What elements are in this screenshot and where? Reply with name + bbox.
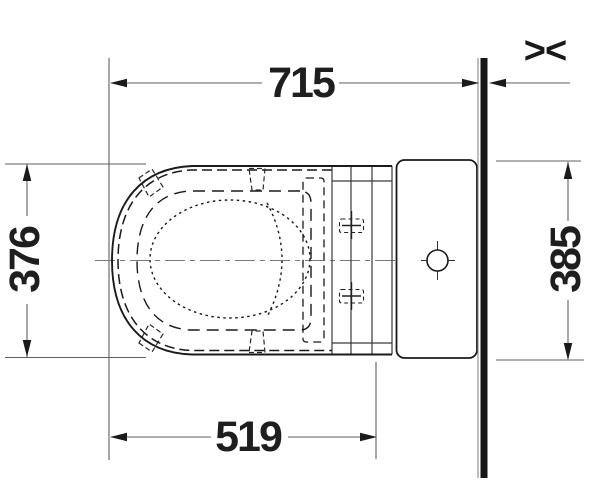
wall-section-bar (481, 58, 488, 478)
flush-button (427, 250, 448, 271)
cistern (397, 160, 478, 358)
technical-drawing-canvas: 715 519 376 385 >< (0, 0, 600, 500)
dimension-seat-width-label: 376 (3, 200, 47, 320)
bumper-bottom-center (249, 331, 265, 353)
bowl-opening-dotted-outline (150, 200, 310, 318)
variable-distance-icon: >< (505, 30, 585, 72)
wall (478, 58, 488, 478)
dimension-overall-depth-label: 715 (241, 61, 361, 105)
bumper-top-center (249, 169, 265, 191)
dimension-cistern-width-label: 385 (544, 200, 588, 320)
extension-lines (5, 58, 584, 460)
dimension-fixing-distance-label: 519 (188, 415, 308, 459)
